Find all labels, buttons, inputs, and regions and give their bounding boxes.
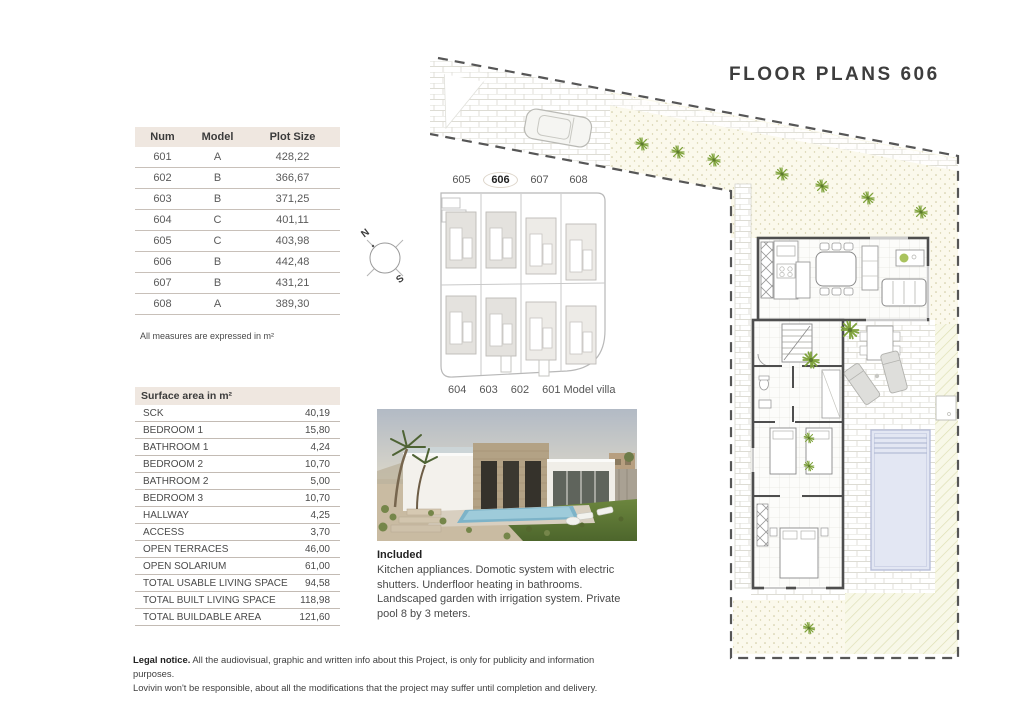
plot-table-body: 601A428,22602B366,67603B371,25604C401,11… [135, 147, 340, 315]
table-cell: B [190, 277, 245, 289]
surface-label: BEDROOM 1 [143, 425, 203, 436]
table-row: TOTAL BUILDABLE AREA121,60 [135, 609, 340, 626]
table-row: HALLWAY4,25 [135, 507, 340, 524]
table-row: 605C403,98 [135, 231, 340, 252]
table-cell: B [190, 193, 245, 205]
surface-value: 118,98 [300, 595, 330, 606]
table-row: 606B442,48 [135, 252, 340, 273]
table-row: 608A389,30 [135, 294, 340, 315]
surface-table-body: SCK40,19BEDROOM 115,80BATHROOM 14,24BEDR… [135, 405, 340, 626]
table-row: 607B431,21 [135, 273, 340, 294]
surface-value: 5,00 [311, 476, 330, 487]
surface-value: 40,19 [305, 408, 330, 419]
surface-value: 15,80 [305, 425, 330, 436]
table-row: 602B366,67 [135, 168, 340, 189]
surface-value: 10,70 [305, 459, 330, 470]
surface-table-header: Surface area in m² [135, 387, 340, 405]
surface-label: TOTAL BUILDABLE AREA [143, 612, 261, 623]
surface-value: 121,60 [299, 612, 330, 623]
table-cell: 403,98 [245, 235, 340, 247]
table-cell: B [190, 256, 245, 268]
table-row: BEDROOM 210,70 [135, 456, 340, 473]
table-row: 603B371,25 [135, 189, 340, 210]
plot-table-header-cell: Model [190, 131, 245, 143]
table-row: BEDROOM 310,70 [135, 490, 340, 507]
table-row: BATHROOM 25,00 [135, 473, 340, 490]
legal-line1: All the audiovisual, graphic and written… [133, 654, 594, 679]
table-cell: 605 [135, 235, 190, 247]
table-cell: B [190, 172, 245, 184]
table-cell: 371,25 [245, 193, 340, 205]
table-row: BATHROOM 14,24 [135, 439, 340, 456]
table-cell: C [190, 214, 245, 226]
surface-label: SCK [143, 408, 164, 419]
surface-value: 4,25 [311, 510, 330, 521]
surface-label: BATHROOM 1 [143, 442, 208, 453]
table-row: TOTAL USABLE LIVING SPACE94,58 [135, 575, 340, 592]
plot-table-header-cell: Plot Size [245, 131, 340, 143]
table-cell: 389,30 [245, 298, 340, 310]
legal-notice: Legal notice. All the audiovisual, graph… [133, 653, 618, 695]
surface-value: 46,00 [305, 544, 330, 555]
table-row: BEDROOM 115,80 [135, 422, 340, 439]
table-row: SCK40,19 [135, 405, 340, 422]
plot-table-header-cell: Num [135, 131, 190, 143]
included-heading: Included [377, 549, 641, 561]
table-row: 604C401,11 [135, 210, 340, 231]
plot-size-table: NumModelPlot Size 601A428,22602B366,6760… [135, 127, 340, 315]
surface-value: 4,24 [311, 442, 330, 453]
plot-table-header: NumModelPlot Size [135, 127, 340, 147]
surface-label: TOTAL USABLE LIVING SPACE [143, 578, 288, 589]
included-text: Kitchen appliances. Domotic system with … [377, 563, 641, 621]
table-row: ACCESS3,70 [135, 524, 340, 541]
table-cell: 608 [135, 298, 190, 310]
table-cell: A [190, 298, 245, 310]
surface-value: 94,58 [305, 578, 330, 589]
legal-lead: Legal notice. [133, 654, 190, 665]
pool [871, 430, 930, 570]
surface-label: HALLWAY [143, 510, 189, 521]
surface-label: ACCESS [143, 527, 184, 538]
legal-line2: Lovivin won't be responsible, about all … [133, 682, 597, 693]
table-cell: 401,11 [245, 214, 340, 226]
measures-note: All measures are expressed in m² [140, 331, 274, 341]
surface-area-table: Surface area in m² SCK40,19BEDROOM 115,8… [135, 387, 340, 626]
included-block: Included Kitchen appliances. Domotic sys… [377, 549, 641, 621]
surface-label: OPEN SOLARIUM [143, 561, 226, 572]
table-cell: 603 [135, 193, 190, 205]
surface-label: TOTAL BUILT LIVING SPACE [143, 595, 276, 606]
compass-icon [367, 240, 403, 276]
table-row: 601A428,22 [135, 147, 340, 168]
table-cell: 601 [135, 151, 190, 163]
table-cell: 604 [135, 214, 190, 226]
table-cell: 606 [135, 256, 190, 268]
table-cell: 428,22 [245, 151, 340, 163]
table-cell: 602 [135, 172, 190, 184]
table-cell: 607 [135, 277, 190, 289]
surface-label: BATHROOM 2 [143, 476, 208, 487]
table-row: TOTAL BUILT LIVING SPACE118,98 [135, 592, 340, 609]
villa-photo [377, 409, 637, 541]
table-cell: C [190, 235, 245, 247]
table-row: OPEN SOLARIUM61,00 [135, 558, 340, 575]
surface-value: 3,70 [311, 527, 330, 538]
brochure-page: { "title": "FLOOR PLANS 606", "plot_tabl… [0, 0, 1024, 724]
surface-value: 61,00 [305, 561, 330, 572]
surface-value: 10,70 [305, 493, 330, 504]
table-cell: A [190, 151, 245, 163]
surface-label: BEDROOM 3 [143, 493, 203, 504]
table-cell: 442,48 [245, 256, 340, 268]
table-cell: 366,67 [245, 172, 340, 184]
table-cell: 431,21 [245, 277, 340, 289]
table-row: OPEN TERRACES46,00 [135, 541, 340, 558]
surface-label: BEDROOM 2 [143, 459, 203, 470]
surface-label: OPEN TERRACES [143, 544, 228, 555]
